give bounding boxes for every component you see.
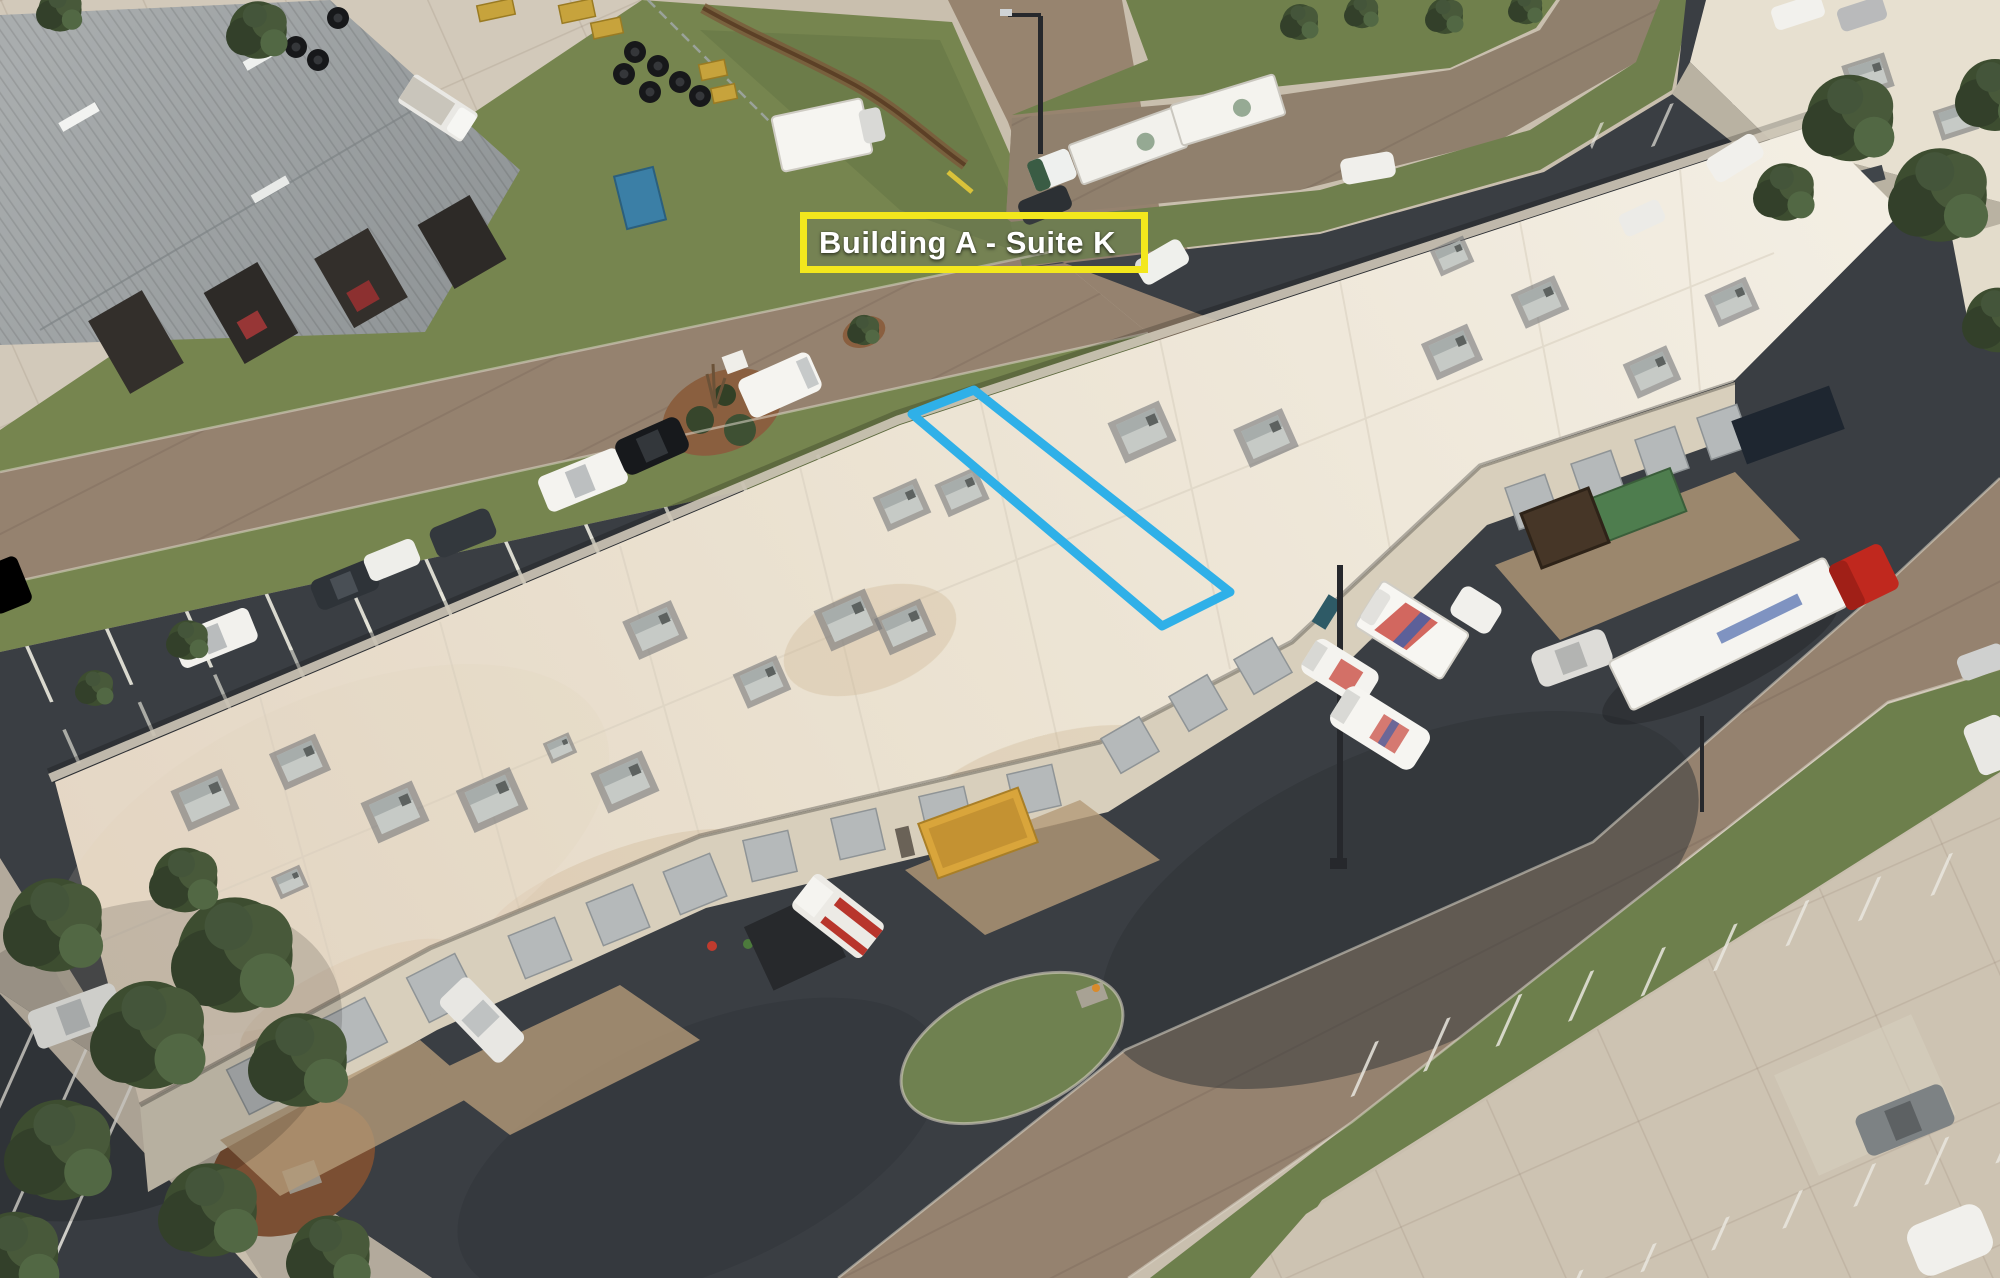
- hydrant: [707, 941, 717, 951]
- label-text: Building A - Suite K: [819, 225, 1116, 261]
- aerial-scene: [0, 0, 2000, 1278]
- aerial-photo: Building A - Suite K: [0, 0, 2000, 1278]
- label-box: Building A - Suite K: [800, 212, 1148, 273]
